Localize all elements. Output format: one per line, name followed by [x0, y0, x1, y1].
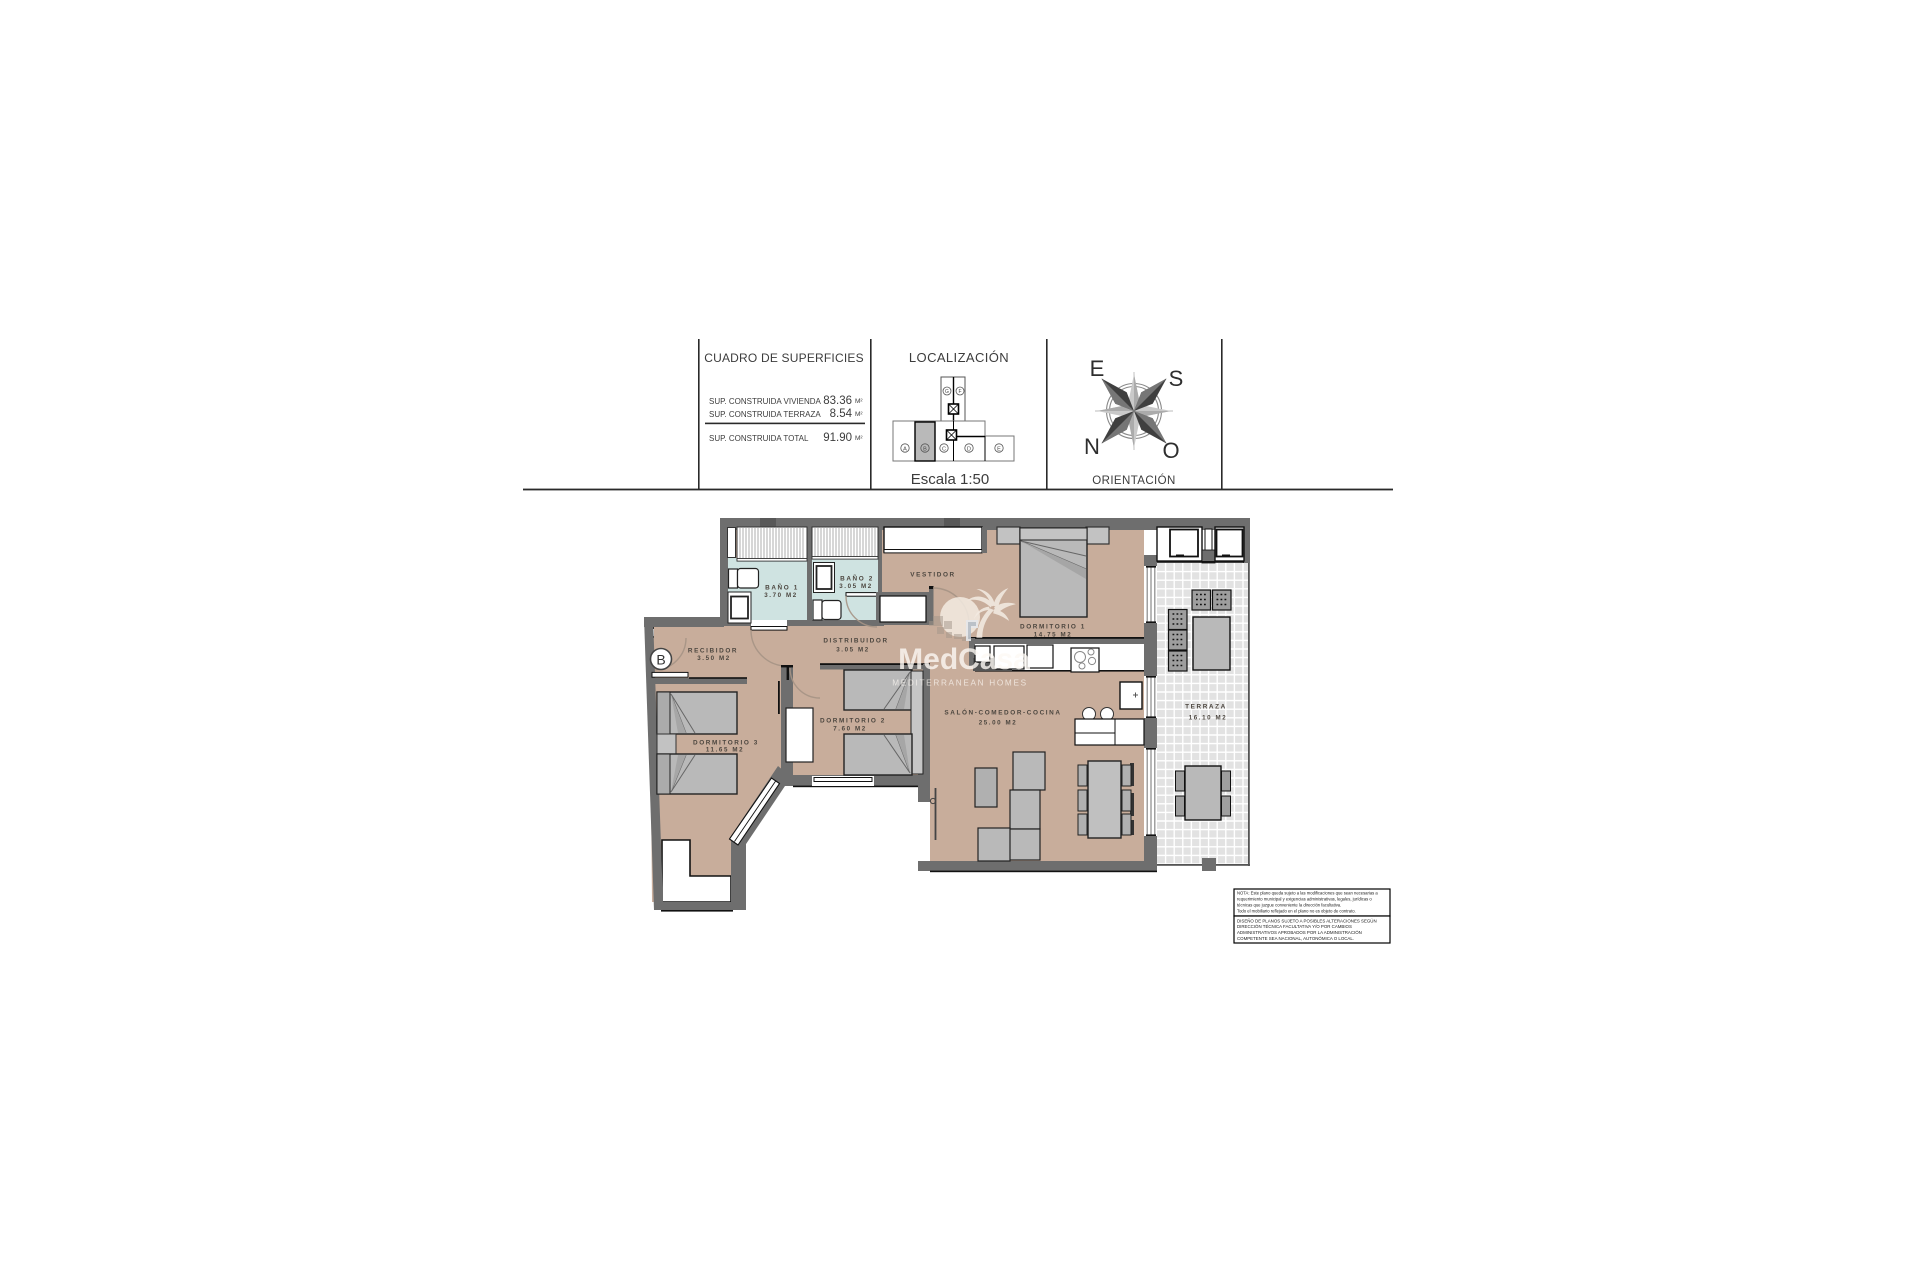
svg-text:COMPETENTE SEA NACIONAL, AUTON: COMPETENTE SEA NACIONAL, AUTONÓMICA O LO… — [1237, 936, 1354, 941]
svg-text:14.75 M2: 14.75 M2 — [1034, 632, 1073, 639]
svg-text:técnicas que juzgue convenient: técnicas que juzgue conveniente la direc… — [1237, 903, 1341, 908]
svg-text:M²: M² — [855, 435, 863, 442]
svg-text:CUADRO DE SUPERFICIES: CUADRO DE SUPERFICIES — [704, 351, 864, 365]
svg-text:B: B — [923, 447, 927, 453]
svg-text:DISEÑO DE PLANOS SUJETO A POSI: DISEÑO DE PLANOS SUJETO A POSIBLES ALTER… — [1237, 918, 1377, 923]
svg-text:TERRAZA: TERRAZA — [1185, 704, 1227, 711]
svg-text:SALÓN-COMEDOR-COCINA: SALÓN-COMEDOR-COCINA — [944, 708, 1061, 717]
svg-text:E: E — [997, 447, 1001, 453]
svg-text:NOTA: Este plano queda sujeto: NOTA: Este plano queda sujeto a las modi… — [1237, 891, 1378, 896]
svg-text:DIRECCIÓN TÉCNICA FACULTATIVA: DIRECCIÓN TÉCNICA FACULTATIVA Y/O POR CA… — [1237, 924, 1352, 929]
svg-text:VESTIDOR: VESTIDOR — [910, 572, 955, 579]
svg-text:3.70 M2: 3.70 M2 — [764, 592, 798, 599]
svg-text:7.60 M2: 7.60 M2 — [833, 726, 867, 733]
svg-text:ORIENTACIÓN: ORIENTACIÓN — [1092, 474, 1175, 487]
svg-text:LOCALIZACIÓN: LOCALIZACIÓN — [909, 350, 1009, 365]
svg-text:Escala 1:50: Escala 1:50 — [911, 471, 989, 488]
svg-text:Todo el mobiliario reflejado e: Todo el mobiliario reflejado en el plano… — [1237, 909, 1356, 914]
svg-text:BAÑO 2: BAÑO 2 — [840, 574, 874, 583]
svg-text:3.50 M2: 3.50 M2 — [697, 655, 731, 662]
svg-text:MedCasa: MedCasa — [898, 643, 1030, 676]
svg-text:M²: M² — [855, 398, 863, 405]
svg-text:S: S — [1169, 366, 1184, 391]
svg-text:8.54: 8.54 — [830, 408, 853, 420]
svg-text:DISTRIBUIDOR: DISTRIBUIDOR — [823, 638, 888, 645]
svg-text:DORMITORIO 3: DORMITORIO 3 — [693, 740, 759, 747]
svg-text:SUP. CONSTRUIDA TOTAL: SUP. CONSTRUIDA TOTAL — [709, 434, 809, 443]
svg-text:E: E — [1090, 356, 1105, 381]
svg-text:D: D — [967, 447, 971, 453]
svg-text:11.65 M2: 11.65 M2 — [706, 747, 744, 754]
svg-text:N: N — [1084, 434, 1100, 459]
svg-text:3.05 M2: 3.05 M2 — [839, 583, 873, 590]
svg-text:RECIBIDOR: RECIBIDOR — [688, 648, 738, 655]
svg-text:C: C — [942, 447, 946, 453]
svg-text:91.90: 91.90 — [823, 432, 852, 444]
svg-text:MEDITERRANEAN HOMES: MEDITERRANEAN HOMES — [892, 679, 1028, 688]
svg-text:SUP. CONSTRUIDA VIVIENDA: SUP. CONSTRUIDA VIVIENDA — [709, 397, 822, 406]
svg-text:ADMINISTRATIVOS APROBADOS POR: ADMINISTRATIVOS APROBADOS POR LA ADMINIS… — [1237, 930, 1362, 935]
svg-text:DORMITORIO 1: DORMITORIO 1 — [1020, 624, 1086, 631]
svg-text:F: F — [958, 389, 961, 395]
svg-text:16.10 M2: 16.10 M2 — [1189, 715, 1228, 722]
svg-text:M²: M² — [855, 411, 863, 418]
svg-text:83.36: 83.36 — [823, 395, 852, 407]
svg-text:DORMITORIO 2: DORMITORIO 2 — [820, 718, 886, 725]
svg-text:25.00 M2: 25.00 M2 — [979, 720, 1018, 727]
svg-text:SUP. CONSTRUIDA TERRAZA: SUP. CONSTRUIDA TERRAZA — [709, 410, 821, 419]
svg-text:BAÑO 1: BAÑO 1 — [765, 583, 799, 592]
svg-text:A: A — [903, 447, 907, 453]
svg-text:O: O — [1162, 438, 1179, 463]
svg-text:3.05 M2: 3.05 M2 — [836, 647, 870, 654]
svg-text:G: G — [945, 389, 949, 395]
svg-text:requerimiento municipal y exig: requerimiento municipal y exigencias adm… — [1237, 897, 1372, 902]
svg-text:B: B — [656, 652, 665, 668]
